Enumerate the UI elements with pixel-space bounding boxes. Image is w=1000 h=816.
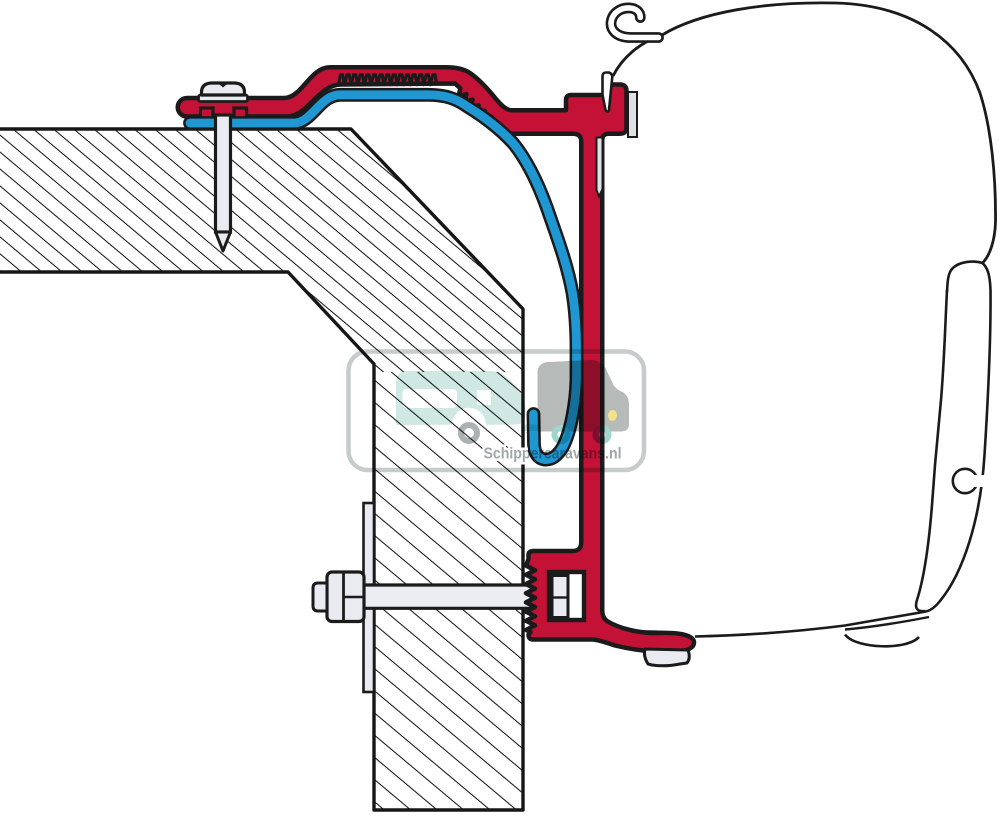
svg-text:Schippercaravans.nl: Schippercaravans.nl xyxy=(484,446,622,463)
